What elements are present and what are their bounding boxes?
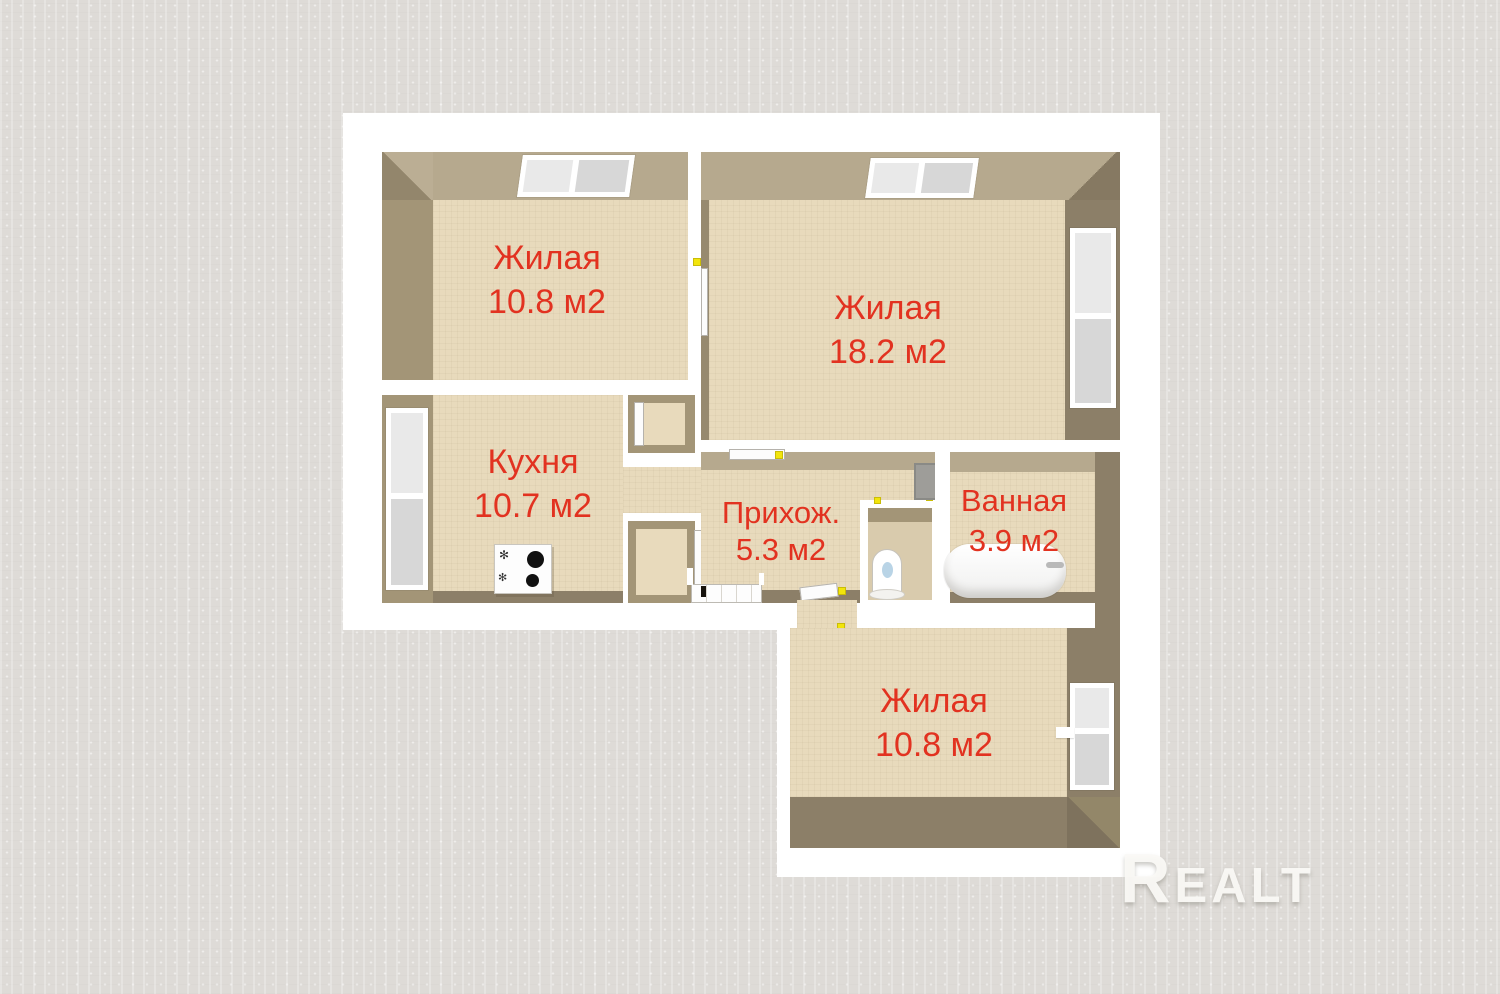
- room-name: Жилая: [875, 679, 993, 723]
- bathtub-faucet: [1046, 562, 1064, 568]
- window-icon: [1070, 228, 1116, 408]
- window-pane: [921, 163, 973, 193]
- window-pane: [871, 163, 919, 193]
- room-name: Прихож.: [722, 494, 840, 531]
- window-icon: [517, 155, 635, 197]
- window-icon: [865, 158, 979, 198]
- floorplan-canvas: ✻ ✻: [0, 0, 1500, 994]
- room-area: 5.3 м2: [722, 531, 840, 568]
- room-name: Ванная: [961, 481, 1067, 521]
- doorway-hallway-to-bottom-room: [797, 600, 857, 630]
- door-jamb: [759, 573, 764, 585]
- room-area: 3.9 м2: [961, 521, 1067, 561]
- window-pane: [523, 160, 573, 192]
- window-pane: [391, 413, 423, 493]
- entrance-door-handle: [701, 586, 706, 597]
- room-b-corner-miter: [1065, 152, 1120, 200]
- room-name: Жилая: [488, 236, 606, 280]
- window-icon: [1070, 683, 1114, 790]
- room-label-living-bottom: Жилая 10.8 м2: [875, 679, 993, 767]
- wall-band-closet-2: [623, 513, 701, 521]
- room-label-bathroom: Ванная 3.9 м2: [961, 481, 1067, 561]
- stove-burner: [526, 574, 539, 587]
- window-sill: [1056, 727, 1074, 738]
- window-pane: [391, 499, 423, 585]
- window-pane: [1075, 319, 1111, 403]
- window-pane: [1075, 688, 1109, 728]
- window-pane: [1075, 233, 1111, 313]
- wall-band-closet-1: [623, 453, 701, 467]
- room-h-corner-miter: [1067, 797, 1120, 848]
- stove-burner-small: ✻: [499, 548, 509, 562]
- closet-bottom: [628, 521, 695, 603]
- door-handle-icon: [874, 497, 881, 504]
- toilet-base: [869, 589, 905, 600]
- toilet-lid: [882, 562, 893, 578]
- room-label-living-top-right: Жилая 18.2 м2: [829, 286, 947, 374]
- window-pane: [575, 160, 629, 192]
- stove-burner-small: ✻: [498, 571, 507, 584]
- room-area: 18.2 м2: [829, 330, 947, 374]
- door-handle-icon: [693, 258, 701, 266]
- window-icon: [386, 408, 428, 590]
- door-handle-icon: [775, 451, 783, 459]
- room-area: 10.8 м2: [875, 723, 993, 767]
- stove-burner: [527, 551, 544, 568]
- door-jamb: [687, 568, 693, 585]
- wc-top-wall: [860, 500, 940, 508]
- room-a-corner-miter: [382, 152, 433, 200]
- window-pane: [1075, 734, 1109, 785]
- room-label-living-top-left: Жилая 10.8 м2: [488, 236, 606, 324]
- door-icon: [634, 402, 644, 446]
- wc-wall-face: [868, 508, 932, 522]
- door-icon: [701, 268, 708, 336]
- room-name: Кухня: [474, 440, 592, 484]
- room-label-kitchen: Кухня 10.7 м2: [474, 440, 592, 528]
- corridor-kitchen-hallway: [623, 467, 709, 513]
- wall-band-above-kitchen: [382, 380, 631, 395]
- room-label-hallway: Прихож. 5.3 м2: [722, 494, 840, 568]
- door-handle-icon: [838, 587, 846, 595]
- realt-watermark: Realt: [1120, 838, 1315, 918]
- wc-left-wall: [860, 500, 868, 603]
- room-h-bottom-wall: [790, 797, 1067, 848]
- room-name: Жилая: [829, 286, 947, 330]
- room-area: 10.7 м2: [474, 484, 592, 528]
- room-area: 10.8 м2: [488, 280, 606, 324]
- bathroom-right-wall: [1095, 452, 1120, 630]
- bathroom-top-wall: [950, 452, 1095, 472]
- stove-icon: ✻ ✻: [494, 544, 552, 594]
